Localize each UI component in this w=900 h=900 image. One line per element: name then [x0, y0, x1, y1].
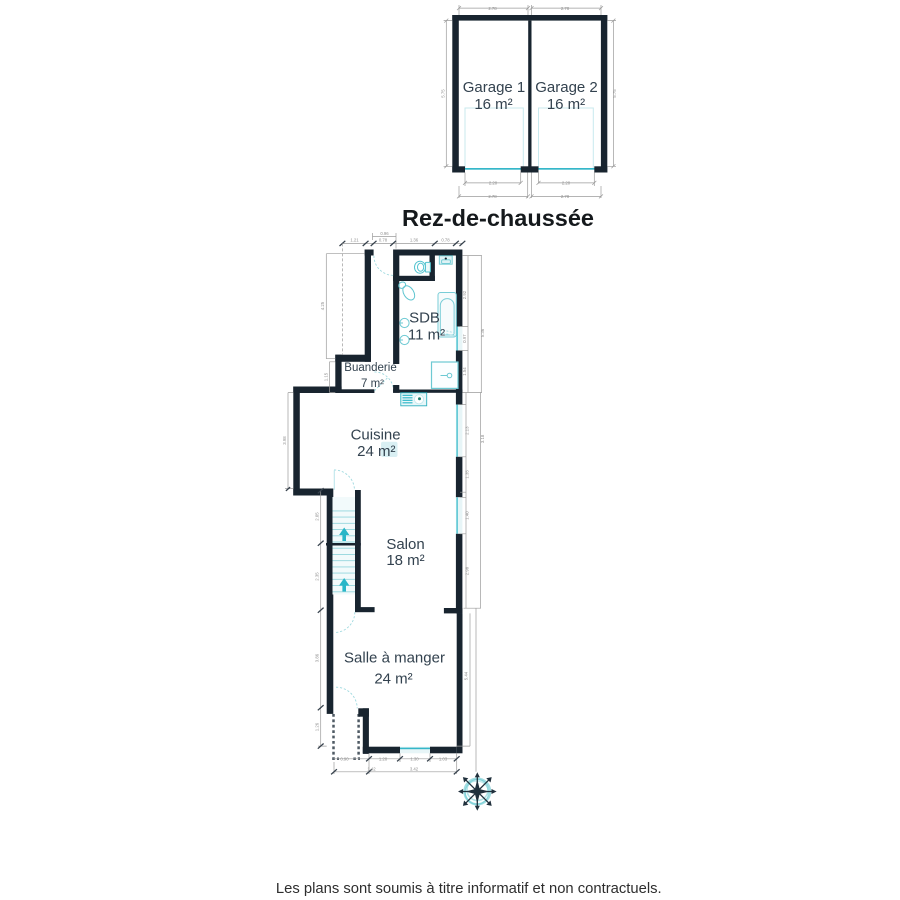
svg-text:1.30: 1.30: [410, 757, 419, 762]
svg-text:0.90: 0.90: [340, 757, 349, 762]
svg-text:2.78: 2.78: [488, 6, 497, 11]
svg-text:16 m²: 16 m²: [547, 96, 585, 113]
svg-text:5.75: 5.75: [612, 89, 617, 98]
svg-text:SDB: SDB: [409, 310, 440, 327]
svg-text:Garage 1: Garage 1: [463, 79, 526, 96]
svg-text:1.54: 1.54: [462, 367, 467, 376]
svg-text:0.78: 0.78: [379, 238, 388, 243]
svg-text:1.26: 1.26: [314, 722, 319, 731]
svg-text:3.98: 3.98: [282, 436, 287, 445]
svg-text:Cuisine: Cuisine: [351, 427, 401, 444]
svg-text:2.78: 2.78: [488, 194, 497, 199]
svg-text:Salon: Salon: [386, 536, 424, 553]
svg-text:4.25: 4.25: [320, 301, 325, 310]
svg-text:24 m²: 24 m²: [357, 443, 395, 460]
svg-text:3.18: 3.18: [480, 434, 485, 443]
svg-text:Garage 2: Garage 2: [535, 79, 598, 96]
svg-text:0.96: 0.96: [380, 231, 389, 236]
svg-text:5.75: 5.75: [441, 89, 446, 98]
svg-text:7 m²: 7 m²: [361, 378, 384, 390]
svg-text:16 m²: 16 m²: [474, 96, 512, 113]
svg-text:2.98: 2.98: [464, 566, 469, 575]
svg-text:Buanderie: Buanderie: [344, 362, 396, 374]
svg-text:2.92: 2.92: [462, 290, 467, 299]
svg-text:1.40: 1.40: [464, 511, 469, 520]
svg-text:1.36: 1.36: [410, 238, 419, 243]
svg-text:2.20: 2.20: [562, 181, 571, 186]
svg-text:5.36: 5.36: [480, 328, 485, 337]
svg-text:Les plans sont soumis à titre: Les plans sont soumis à titre informatif…: [276, 881, 662, 897]
svg-text:1.42: 1.42: [367, 766, 376, 771]
svg-text:24 m²: 24 m²: [374, 671, 412, 688]
svg-text:0.78: 0.78: [441, 238, 450, 243]
svg-text:1.15: 1.15: [323, 372, 328, 381]
svg-text:2.78: 2.78: [561, 6, 570, 11]
svg-text:Rez-de-chaussée: Rez-de-chaussée: [402, 205, 594, 231]
svg-text:2.78: 2.78: [561, 194, 570, 199]
svg-text:1.35: 1.35: [464, 470, 469, 479]
svg-text:2.05: 2.05: [314, 512, 319, 521]
svg-text:3.42: 3.42: [410, 766, 419, 771]
svg-text:3.86: 3.86: [314, 653, 319, 662]
svg-text:Salle à manger: Salle à manger: [344, 650, 445, 667]
svg-text:1.21: 1.21: [350, 238, 359, 243]
svg-text:11 m²: 11 m²: [408, 327, 445, 344]
svg-text:0.97: 0.97: [462, 334, 467, 343]
svg-text:18 m²: 18 m²: [386, 552, 424, 569]
svg-text:2.20: 2.20: [489, 181, 498, 186]
svg-text:5.44: 5.44: [464, 671, 469, 680]
svg-text:1.28: 1.28: [379, 757, 388, 762]
svg-text:2.13: 2.13: [464, 426, 469, 435]
svg-text:1.03: 1.03: [439, 757, 448, 762]
svg-text:2.35: 2.35: [314, 572, 319, 581]
